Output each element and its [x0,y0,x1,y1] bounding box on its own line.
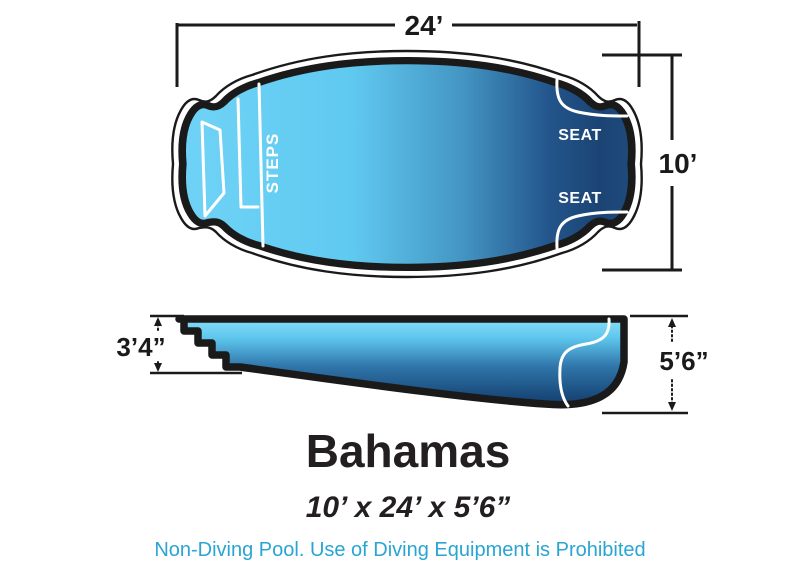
deep-arrow-down [668,402,676,411]
shallow-arrow-down [154,363,162,372]
deep-depth-label: 5’6” [659,346,708,376]
steps-label: STEPS [263,133,282,194]
seat-label-bottom: SEAT [558,190,601,207]
deep-arrow-up [668,318,676,327]
pool-water [182,61,632,268]
side-view: 3’4” 5’6” [116,316,708,413]
side-water [179,319,624,405]
pool-spec-sheet: 24’ 10’ STEPS SEAT SEAT [0,0,800,580]
pool-water-group [182,61,632,268]
non-diving-disclaimer: Non-Diving Pool. Use of Diving Equipment… [154,539,645,561]
width-dimension-label: 10’ [659,148,698,179]
shallow-depth-label: 3’4” [116,332,165,362]
pool-model-title: Bahamas [306,425,511,477]
shallow-arrow-up [154,317,162,326]
top-view: 24’ 10’ STEPS SEAT SEAT [172,10,697,277]
seat-label-top: SEAT [558,127,601,144]
pool-dimensions-summary: 10’ x 24’ x 5’6” [306,491,511,524]
caption-block: Bahamas 10’ x 24’ x 5’6” Non-Diving Pool… [154,425,645,561]
length-dimension-label: 24’ [405,10,444,41]
pool-diagram-svg: 24’ 10’ STEPS SEAT SEAT [0,0,800,580]
